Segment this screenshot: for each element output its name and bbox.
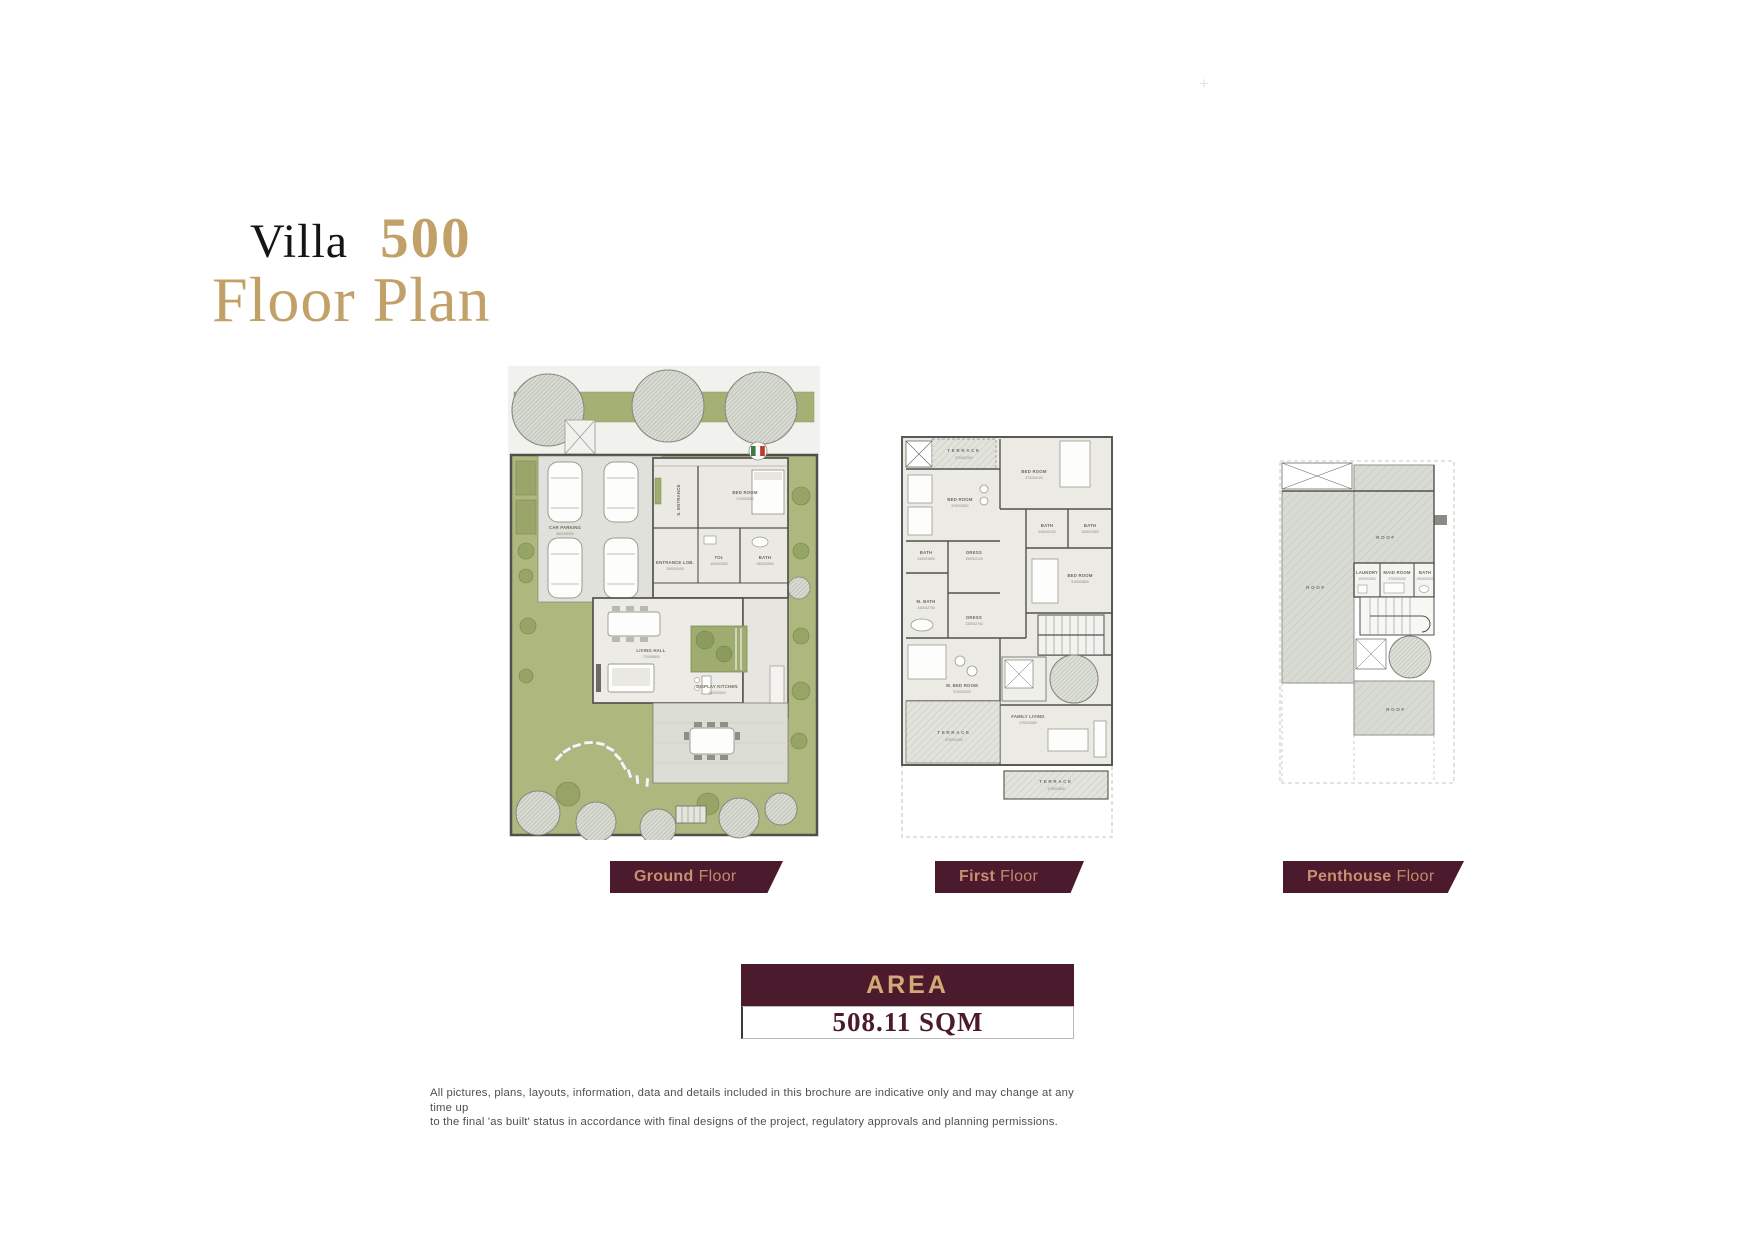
room-label-bath-right: BATH [1084, 523, 1096, 528]
room-label-terrace-bottom: TERRACE [1039, 779, 1072, 784]
room-label-roof-bottom: ROOF [1386, 707, 1406, 712]
registration-plus-mark: + [1199, 74, 1209, 94]
ribbon-label-bold: Ground [634, 868, 694, 886]
room-label-m-bed-room: M. BED ROOM [946, 683, 978, 688]
living-kitchen-block: LIVING HALL 7700X5800 DISPLAY KITCHEN 35… [593, 598, 788, 718]
room-dim-bed-room: 4700X3600 [736, 497, 753, 501]
bed-icon [1060, 441, 1090, 487]
area-value: 508.11 SQM [741, 1006, 1074, 1039]
room-dim-bed-room-right: 5100X3800 [1071, 580, 1088, 584]
room-label-bath: BATH [759, 555, 771, 560]
ribbon-label-rest: Floor [1000, 868, 1038, 886]
car-icon [548, 538, 582, 598]
toilet-icon [1419, 586, 1429, 593]
room-label-bed-room-right: BED ROOM [1067, 573, 1092, 578]
room-label-terrace-top: TERRACE [947, 448, 980, 453]
disclaimer-line-1: All pictures, plans, layouts, informatio… [430, 1086, 1090, 1115]
chair-icon [980, 497, 988, 505]
room-dim-car-parking: 5500X5000 [556, 532, 573, 536]
room-dim-laundry: 1900X2000 [1358, 577, 1375, 581]
street-strip [508, 366, 820, 455]
ribbon-label-rest: Floor [1397, 868, 1435, 886]
car-icon [548, 462, 582, 522]
room-label-entrance-lob: ENTRANCE LOB. [656, 560, 694, 565]
room-dim-bath: 1800X2500 [756, 562, 773, 566]
room-label-m-bath: M. BATH [917, 599, 936, 604]
tree-icon [1050, 655, 1098, 703]
car-icon [604, 538, 638, 598]
room-dim-family-living: 4700X3600 [1019, 721, 1036, 725]
ground-floor-plan: CAR PARKING 5500X5000 S. ENTRANCE BED RO… [508, 366, 820, 840]
room-label-bath: BATH [1419, 570, 1431, 575]
service-rooms: LAUNDRY 1900X2000 MAID ROOM 3700X2200 BA… [1354, 563, 1434, 597]
ribbon-label-bold: First [959, 868, 995, 886]
room-dim-terrace-top: 3700X2300 [955, 456, 972, 460]
room-dim-toi: 1500X2500 [710, 562, 727, 566]
console-icon [1094, 721, 1106, 757]
bathtub-icon [911, 619, 933, 631]
title-subtitle: Floor Plan [212, 263, 490, 337]
room-dim-bath-mid: 2400X2100 [1038, 530, 1055, 534]
terrace-bottom [1004, 771, 1108, 799]
room-label-s-entrance: S. ENTRANCE [676, 484, 681, 515]
tree-icon [632, 370, 704, 442]
disclaimer-line-2: to the final 'as built' status in accord… [430, 1115, 1090, 1130]
ribbon-label-bold: Penthouse [1307, 868, 1392, 886]
room-label-roof-left: ROOF [1306, 585, 1326, 590]
room-label-dress-left: DRESS [966, 550, 982, 555]
tree-icon [725, 372, 797, 444]
stairs-icon [1038, 615, 1104, 655]
room-label-bath-left: BATH [920, 550, 932, 555]
car-parking-area: CAR PARKING 5500X5000 [538, 456, 662, 602]
house-upper-block: S. ENTRANCE BED ROOM 4700X3600 TOI. 1500… [653, 458, 788, 598]
terrace-top: TERRACE 3700X2300 [932, 439, 996, 469]
disclaimer-text: All pictures, plans, layouts, informatio… [430, 1086, 1090, 1130]
room-dim-bath-left: 2400X1900 [917, 557, 934, 561]
page-title: Villa 500 Floor Plan [212, 206, 490, 337]
washer-icon [1358, 585, 1367, 593]
room-dim-dress-mid: 2300X2700 [965, 622, 982, 626]
chair-icon [967, 666, 977, 676]
ribbon-label-rest: Floor [699, 868, 737, 886]
tree-icon [1389, 636, 1431, 678]
room-label-laundry: LAUNDRY [1356, 570, 1378, 575]
pergola-crossed-box [1282, 463, 1352, 489]
room-label-living-hall: LIVING HALL [636, 648, 665, 653]
room-label-bed-room-top: BED ROOM [1021, 469, 1046, 474]
bed-icon [1384, 583, 1404, 593]
area-header-banner: AREA [741, 964, 1074, 1006]
room-dim-dress-left: 1900X2100 [965, 557, 982, 561]
room-label-roof-top: ROOF [1376, 535, 1396, 540]
room-dim-terrace-left: 5700X2400 [945, 738, 962, 742]
bed-icon [908, 507, 932, 535]
bed-icon [908, 475, 932, 503]
room-label-bed-room-left: BED ROOM [947, 497, 972, 502]
room-dim-bed-room-left: 5700X3800 [951, 504, 968, 508]
garden-stairs-icon [676, 806, 706, 823]
bed-icon [908, 645, 946, 679]
room-label-terrace-left: TERRACE [937, 730, 970, 735]
room-dim-m-bath: 2400X2700 [917, 606, 934, 610]
room-dim-bath: 1900X2000 [1416, 577, 1433, 581]
room-label-display-kitchen: DISPLAY KITCHEN [696, 684, 737, 689]
room-dim-display-kitchen: 3500X3600 [708, 691, 725, 695]
room-label-maid-room: MAID ROOM [1383, 570, 1411, 575]
car-icon [604, 462, 638, 522]
room-label-bed-room: BED ROOM [732, 490, 757, 495]
room-label-bath-mid: BATH [1041, 523, 1053, 528]
room-dim-entrance-lob: 3300X2400 [666, 567, 683, 571]
rear-terrace [653, 703, 788, 783]
penthouse-floor-ribbon: Penthouse Floor [1283, 861, 1464, 893]
chair-icon [955, 656, 965, 666]
chair-icon [980, 485, 988, 493]
stairs-icon [1360, 597, 1434, 635]
first-floor-plan: TERRACE 3700X2300 [898, 433, 1116, 846]
room-dim-living-hall: 7700X5800 [642, 655, 659, 659]
flag-emblem-icon [749, 442, 767, 460]
first-floor-ribbon: First Floor [935, 861, 1084, 893]
title-villa-number: 500 [380, 206, 472, 271]
room-label-car-parking: CAR PARKING [549, 525, 582, 530]
sofa-icon [1048, 729, 1088, 751]
title-villa: Villa [250, 214, 348, 269]
ground-floor-ribbon: Ground Floor [610, 861, 783, 893]
penthouse-floor-plan: LAUNDRY 1900X2000 MAID ROOM 3700X2200 BA… [1276, 457, 1458, 792]
room-label-toi: TOI. [714, 555, 723, 560]
room-dim-bath-right: 2400X1900 [1081, 530, 1098, 534]
room-label-family-living: FAMILY LIVING [1011, 714, 1045, 719]
room-dim-bed-room-top: 4700X4100 [1025, 476, 1042, 480]
brochure-page: Villa 500 Floor Plan + [0, 0, 1755, 1241]
room-dim-m-bed-room: 5700X3200 [953, 690, 970, 694]
room-dim-maid-room: 3700X2200 [1388, 577, 1405, 581]
room-label-dress-mid: DRESS [966, 615, 982, 620]
bed-icon [1032, 559, 1058, 603]
shaft-crossed-box [906, 441, 932, 467]
room-dim-terrace-bottom: 4700X1800 [1047, 787, 1064, 791]
courtyard [1356, 636, 1431, 678]
